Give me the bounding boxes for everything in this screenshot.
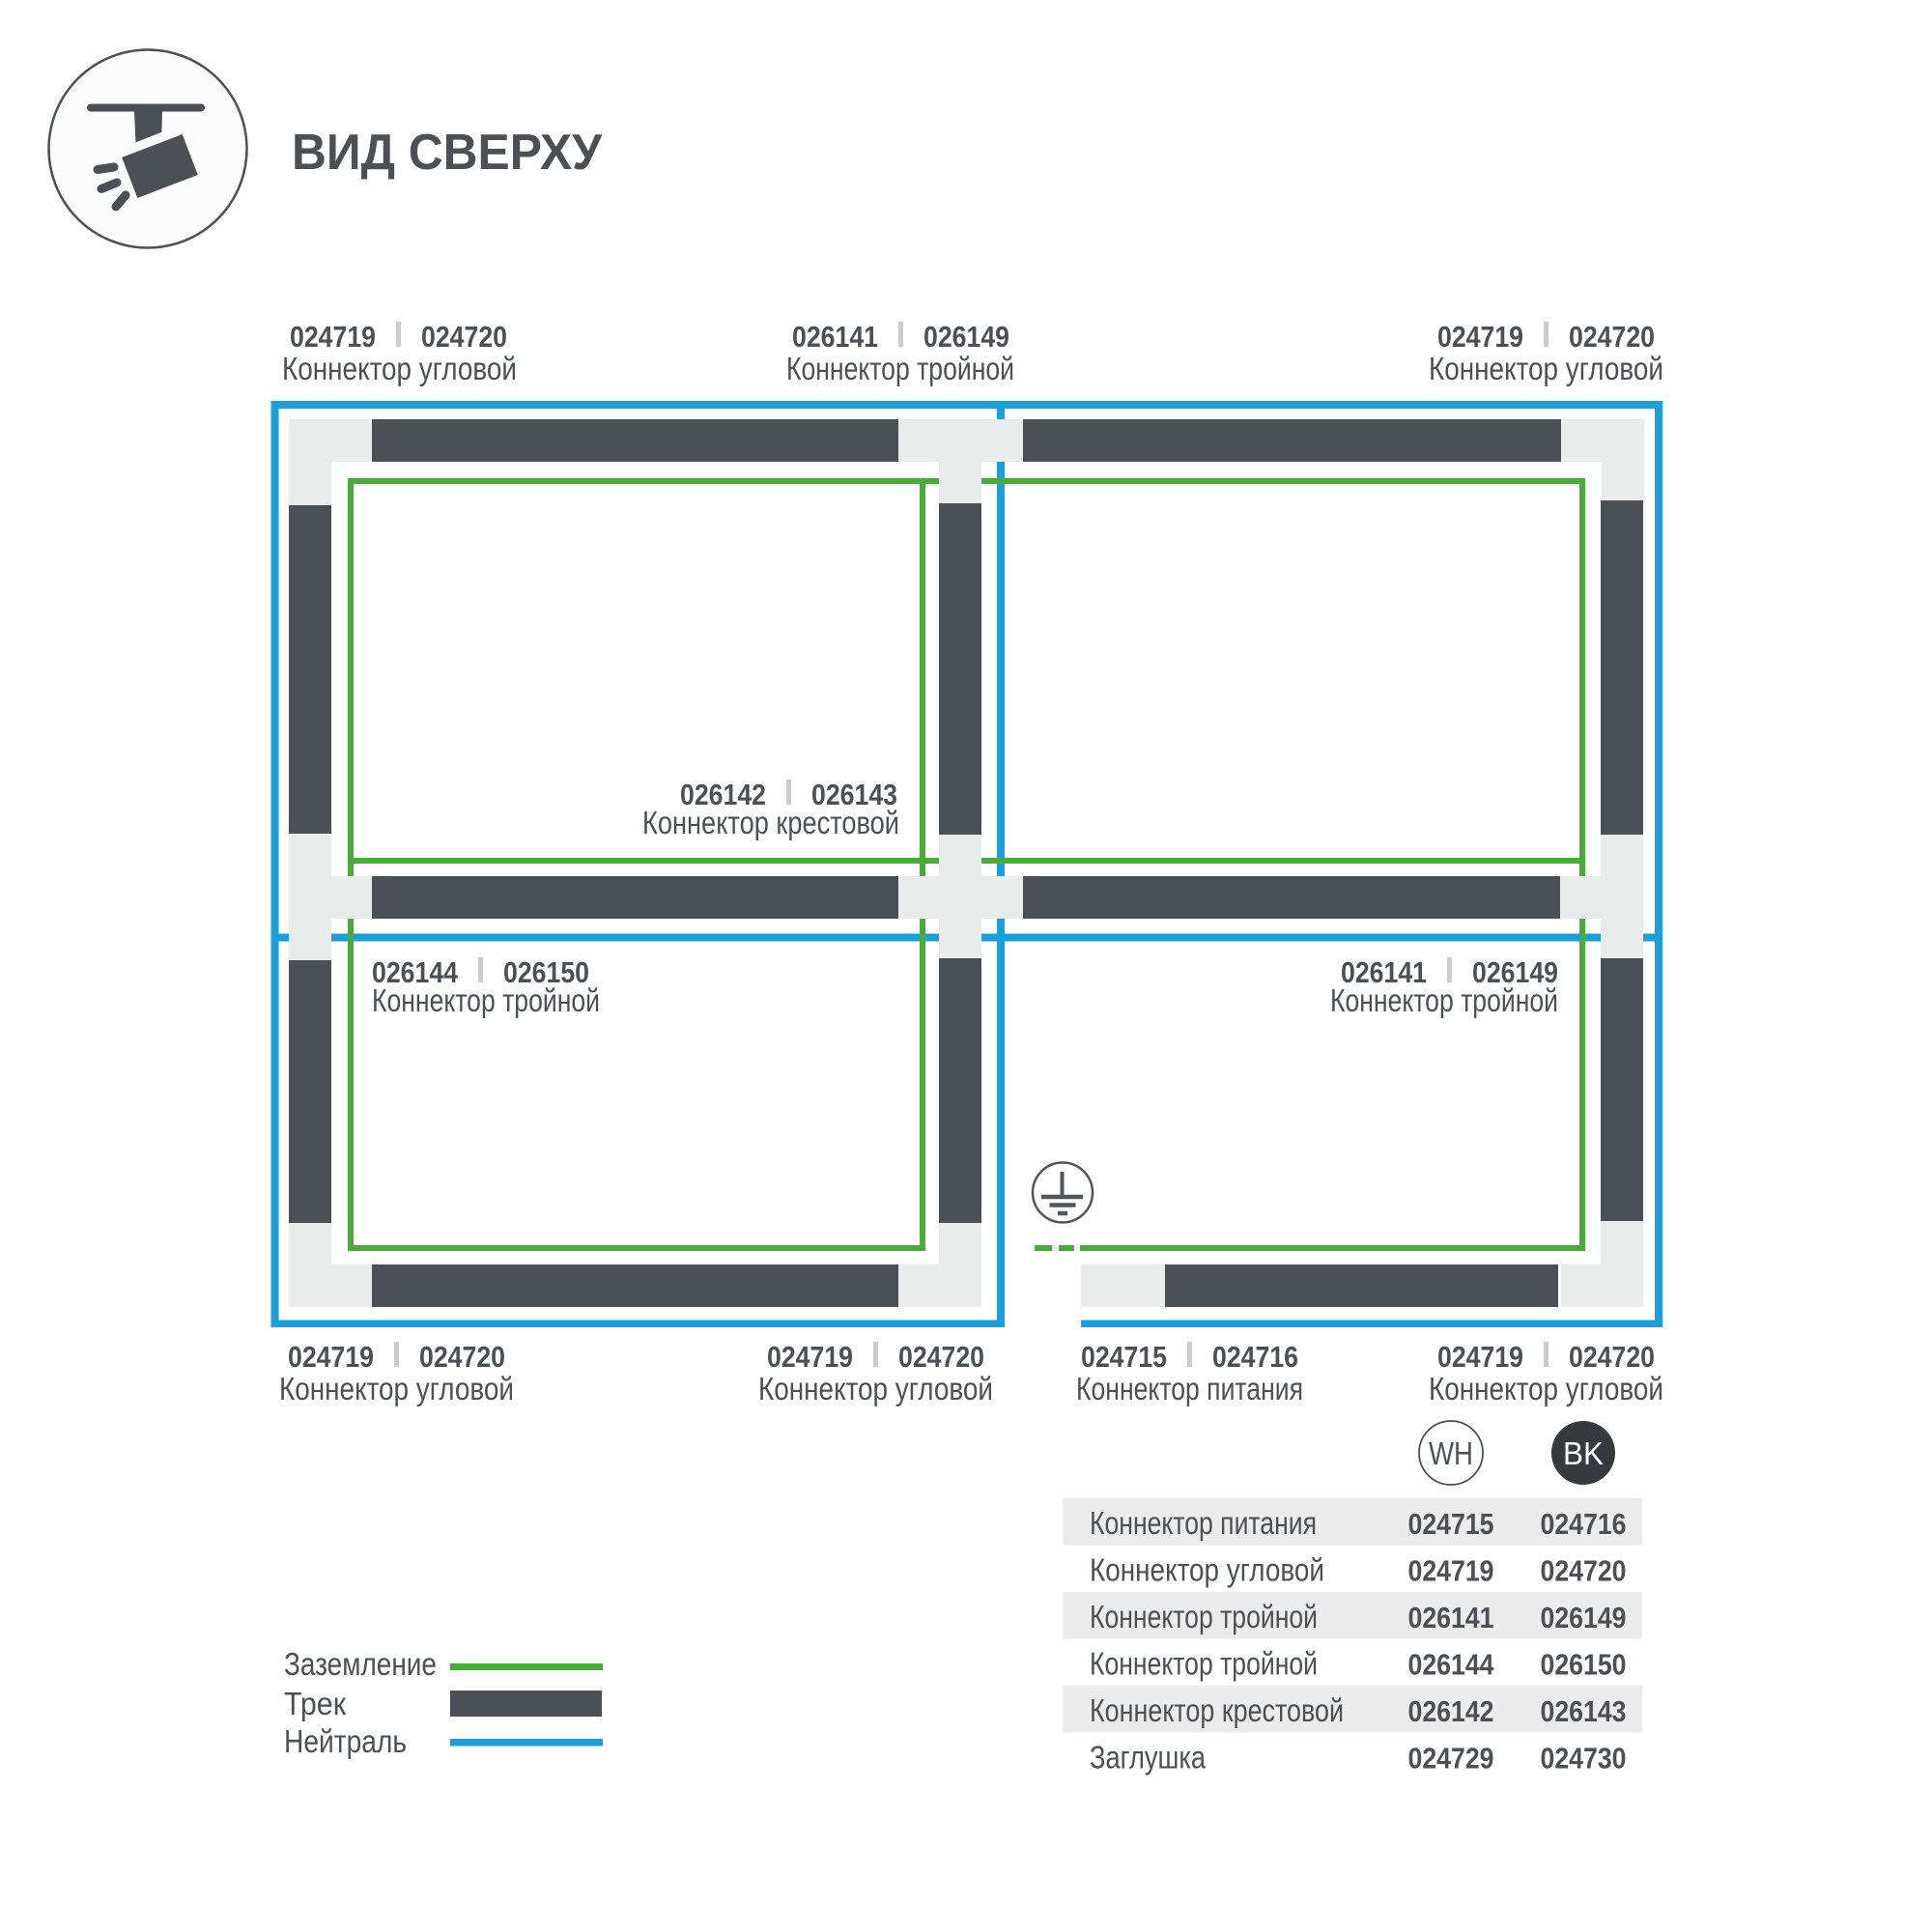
svg-text:024720: 024720 [1569,1340,1655,1374]
svg-text:Заземление: Заземление [284,1646,437,1682]
svg-text:Коннектор угловой: Коннектор угловой [1429,1371,1663,1406]
svg-text:024720: 024720 [421,320,507,354]
svg-text:Коннектор угловой: Коннектор угловой [282,351,517,386]
svg-text:Коннектор тройной: Коннектор тройной [372,982,600,1018]
svg-text:026141: 026141 [1408,1601,1494,1634]
svg-text:Коннектор питания: Коннектор питания [1090,1505,1317,1541]
svg-text:Заглушка: Заглушка [1090,1740,1207,1776]
svg-text:Коннектор тройной: Коннектор тройной [1330,982,1558,1018]
svg-text:024719: 024719 [767,1340,853,1374]
svg-text:024729: 024729 [1408,1742,1494,1776]
svg-text:Коннектор тройной: Коннектор тройной [786,351,1014,386]
svg-text:024720: 024720 [898,1340,984,1374]
svg-text:026149: 026149 [1541,1601,1627,1634]
svg-text:024719: 024719 [1437,320,1523,354]
svg-text:026149: 026149 [923,320,1009,354]
svg-text:026144: 026144 [1408,1648,1495,1682]
svg-text:Коннектор тройной: Коннектор тройной [1090,1599,1318,1634]
svg-text:ВИД СВЕРХУ: ВИД СВЕРХУ [292,125,603,181]
svg-text:Коннектор угловой: Коннектор угловой [279,1371,514,1406]
svg-text:024719: 024719 [1437,1340,1523,1374]
svg-text:Коннектор питания: Коннектор питания [1076,1371,1303,1406]
svg-text:BK: BK [1563,1435,1604,1471]
svg-text:Коннектор угловой: Коннектор угловой [758,1371,993,1406]
svg-text:Коннектор тройной: Коннектор тройной [1090,1646,1318,1682]
svg-text:026150: 026150 [1541,1648,1627,1682]
svg-text:024716: 024716 [1212,1340,1298,1374]
svg-text:024720: 024720 [1541,1554,1627,1588]
svg-text:WH: WH [1429,1435,1473,1471]
svg-text:Трек: Трек [284,1686,347,1721]
svg-text:024720: 024720 [419,1340,505,1374]
svg-text:Коннектор угловой: Коннектор угловой [1429,351,1663,386]
svg-text:024720: 024720 [1569,320,1655,354]
svg-text:Коннектор угловой: Коннектор угловой [1090,1552,1324,1588]
svg-text:026142: 026142 [1408,1694,1494,1728]
svg-text:Коннектор крестовой: Коннектор крестовой [642,805,899,840]
svg-text:Коннектор крестовой: Коннектор крестовой [1090,1692,1344,1728]
svg-text:024715: 024715 [1081,1340,1167,1374]
svg-text:026143: 026143 [1541,1694,1627,1728]
svg-text:024716: 024716 [1541,1507,1627,1541]
svg-text:024719: 024719 [290,320,376,354]
svg-text:024730: 024730 [1541,1742,1627,1776]
svg-text:Нейтраль: Нейтраль [284,1723,407,1759]
svg-text:024715: 024715 [1408,1507,1494,1541]
svg-text:024719: 024719 [1408,1554,1494,1588]
svg-text:026141: 026141 [792,320,878,354]
svg-text:024719: 024719 [288,1340,374,1374]
